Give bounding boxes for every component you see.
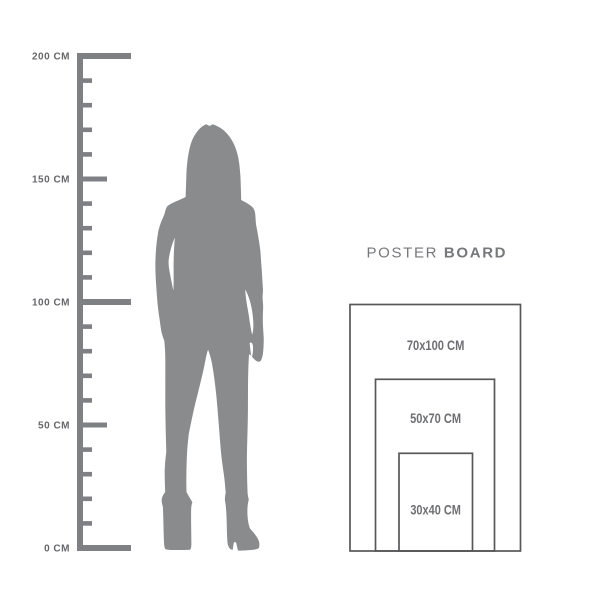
svg-text:50x70 CM: 50x70 CM <box>410 411 461 426</box>
svg-text:200 CM: 200 CM <box>32 52 70 63</box>
svg-text:50 CM: 50 CM <box>38 421 70 432</box>
svg-text:0 CM: 0 CM <box>44 544 70 555</box>
svg-text:100 CM: 100 CM <box>32 298 70 309</box>
svg-text:150 CM: 150 CM <box>32 175 70 186</box>
svg-text:POSTER BOARD: POSTER BOARD <box>367 245 508 262</box>
svg-text:30x40 CM: 30x40 CM <box>410 503 461 518</box>
svg-text:70x100 CM: 70x100 CM <box>407 338 465 353</box>
